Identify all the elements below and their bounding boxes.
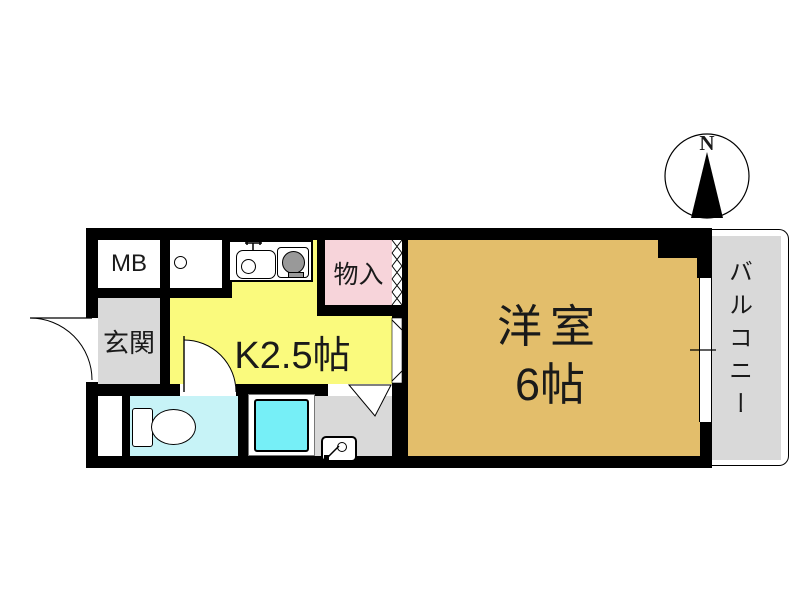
bottom-interior-wall-left <box>86 384 180 396</box>
toilet-bowl-icon <box>151 409 196 445</box>
mb-utility-bottom-wall <box>86 288 232 298</box>
toilet-doorway-opening <box>180 384 236 396</box>
stove-grate-icon <box>288 272 304 278</box>
entrance-opening <box>86 318 98 382</box>
utility-fixture-circle-icon <box>174 256 187 269</box>
western-room-label-line2: 6帖 <box>450 354 650 406</box>
genkan-right-wall <box>160 240 170 396</box>
compass-north-label: N <box>692 131 722 155</box>
washroom-doorway-opening <box>328 384 392 396</box>
genkan-label: 玄関 <box>98 298 160 384</box>
western-room-label-line1: 洋室 <box>450 296 650 348</box>
toilet-washroom-wall <box>238 384 248 456</box>
mb-label: MB <box>98 240 160 288</box>
storage-left-wall <box>317 240 325 305</box>
kitchen-west-room-wall <box>392 228 408 456</box>
kitchen-label: K2.5帖 <box>200 326 385 376</box>
balcony-label: バルコニー <box>718 246 758 436</box>
pipe-shaft <box>98 396 122 456</box>
storage-label: 物入 <box>325 240 392 305</box>
toilet-tank-icon <box>132 408 153 447</box>
bathtub-icon <box>254 399 309 452</box>
shaft-right-wall <box>122 396 130 456</box>
sink-drain-icon <box>241 259 256 274</box>
corner-column-a <box>658 228 712 258</box>
floor-plan: MB 玄関 K2.5帖 物入 洋室 6帖 バルコニー N <box>0 0 800 600</box>
entrance-door-swing-icon <box>30 318 92 380</box>
stove-burner-icon <box>282 251 305 274</box>
washer-knob-icon <box>337 442 347 452</box>
